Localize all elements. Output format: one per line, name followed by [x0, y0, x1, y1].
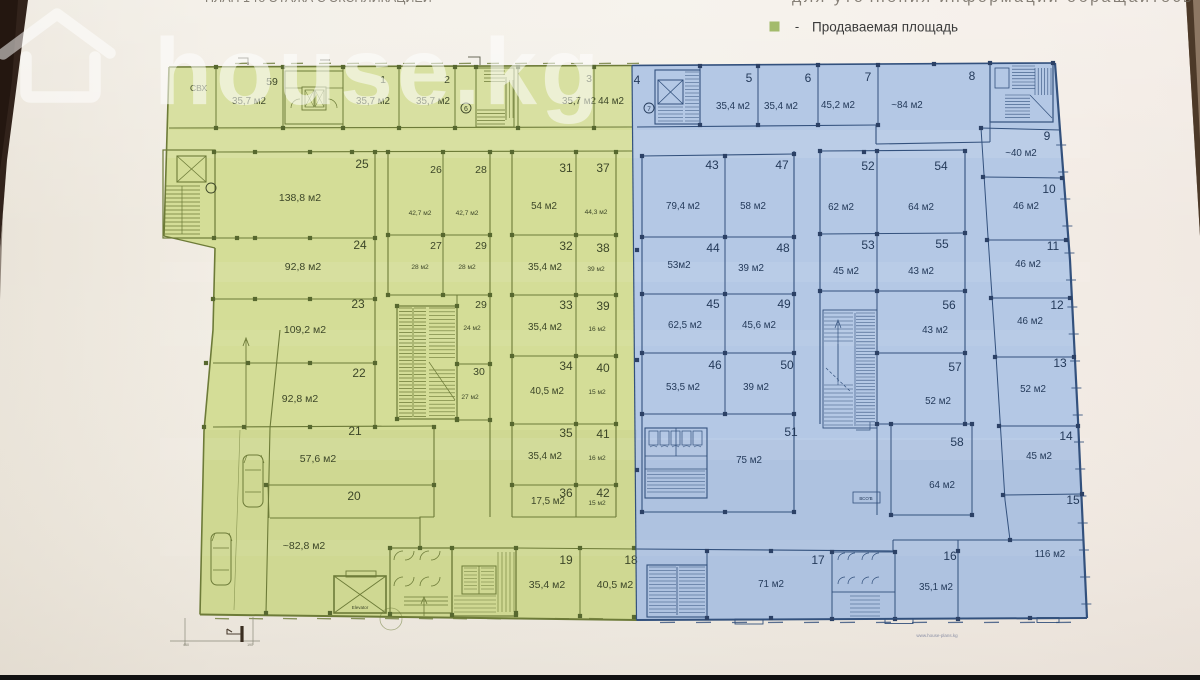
svg-text:92,8 м2: 92,8 м2 — [285, 261, 322, 273]
svg-text:46 м2: 46 м2 — [1015, 259, 1041, 270]
svg-text:4: 4 — [634, 73, 641, 87]
svg-text:20: 20 — [347, 489, 361, 503]
svg-text:28 м2: 28 м2 — [458, 264, 476, 271]
svg-text:27: 27 — [430, 240, 442, 252]
svg-text:138,8 м2: 138,8 м2 — [279, 192, 321, 204]
svg-text:22: 22 — [352, 366, 366, 380]
svg-text:58 м2: 58 м2 — [740, 201, 766, 212]
svg-text:55: 55 — [935, 237, 949, 251]
svg-text:53,5 м2: 53,5 м2 — [666, 382, 700, 393]
svg-text:17: 17 — [811, 553, 825, 567]
svg-text:5: 5 — [746, 71, 753, 85]
svg-text:24 м2: 24 м2 — [463, 325, 481, 332]
svg-text:44: 44 — [706, 241, 720, 255]
svg-text:45 м2: 45 м2 — [1026, 451, 1052, 462]
svg-text:45: 45 — [706, 297, 720, 311]
svg-text:14: 14 — [1059, 429, 1073, 443]
svg-text:52 м2: 52 м2 — [1020, 384, 1046, 395]
svg-text:39 м2: 39 м2 — [743, 382, 769, 393]
svg-text:460: 460 — [183, 643, 189, 647]
svg-text:13: 13 — [1053, 356, 1067, 370]
svg-text:45,6 м2: 45,6 м2 — [742, 320, 776, 331]
svg-text:28 м2: 28 м2 — [411, 264, 429, 271]
svg-text:92,8 м2: 92,8 м2 — [282, 393, 319, 405]
svg-text:24: 24 — [353, 238, 367, 252]
svg-text:28: 28 — [475, 164, 487, 176]
svg-text:71 м2: 71 м2 — [758, 579, 784, 590]
svg-text:26: 26 — [430, 164, 442, 176]
svg-text:62 м2: 62 м2 — [828, 202, 854, 213]
svg-text:54: 54 — [934, 159, 948, 173]
svg-text:25: 25 — [355, 157, 369, 171]
svg-text:47: 47 — [775, 158, 789, 172]
svg-text:house.kg: house.kg — [154, 19, 603, 125]
svg-text:для уточнения информации обращ: для уточнения информации обращайтесь — [792, 0, 1194, 6]
svg-text:35,4 м2: 35,4 м2 — [716, 101, 750, 112]
svg-text:31: 31 — [559, 161, 573, 175]
svg-text:www.house-plans.kg: www.house-plans.kg — [916, 633, 958, 638]
svg-text:38: 38 — [596, 241, 610, 255]
svg-text:43 м2: 43 м2 — [922, 325, 948, 336]
svg-text:35,4 м2: 35,4 м2 — [528, 322, 562, 333]
svg-text:~82,8 м2: ~82,8 м2 — [283, 540, 326, 552]
svg-text:7: 7 — [647, 106, 651, 113]
svg-text:42,7 м2: 42,7 м2 — [409, 210, 432, 217]
svg-text:64 м2: 64 м2 — [908, 202, 934, 213]
svg-text:49: 49 — [777, 297, 791, 311]
svg-text:79,4 м2: 79,4 м2 — [666, 201, 700, 212]
svg-text:109,2 м2: 109,2 м2 — [284, 324, 326, 336]
svg-text:35,4 м2: 35,4 м2 — [764, 101, 798, 112]
svg-text:39 м2: 39 м2 — [738, 263, 764, 274]
svg-text:40,5 м2: 40,5 м2 — [530, 386, 564, 397]
svg-text:33: 33 — [559, 298, 573, 312]
svg-text:62,5 м2: 62,5 м2 — [668, 320, 702, 331]
svg-text:43: 43 — [705, 158, 719, 172]
svg-text:51: 51 — [784, 425, 798, 439]
svg-text:35,4 м2: 35,4 м2 — [528, 262, 562, 273]
svg-text:ПЛАН 1-го ЭТАЖА С ЭКСПЛИКАЦИЕЙ: ПЛАН 1-го ЭТАЖА С ЭКСПЛИКАЦИЕЙ — [205, 0, 432, 5]
svg-text:34: 34 — [559, 359, 573, 373]
svg-text:42: 42 — [596, 486, 610, 500]
svg-text:53м2: 53м2 — [667, 260, 690, 271]
svg-text:29: 29 — [475, 299, 487, 311]
svg-text:190: 190 — [247, 643, 253, 647]
svg-text:8: 8 — [969, 69, 976, 83]
svg-text:30: 30 — [473, 366, 485, 378]
svg-text:9: 9 — [1044, 129, 1051, 143]
svg-text:42,7 м2: 42,7 м2 — [456, 210, 479, 217]
svg-text:23: 23 — [351, 297, 365, 311]
svg-text:17,5 м2: 17,5 м2 — [531, 496, 565, 507]
svg-text:-: - — [795, 19, 799, 34]
svg-text:116 м2: 116 м2 — [1035, 549, 1066, 560]
svg-text:35,4 м2: 35,4 м2 — [529, 579, 566, 591]
svg-text:12: 12 — [1050, 298, 1064, 312]
svg-text:~40 м2: ~40 м2 — [1005, 148, 1037, 159]
svg-text:6: 6 — [805, 71, 812, 85]
svg-text:40,5 м2: 40,5 м2 — [597, 579, 634, 591]
svg-text:27 м2: 27 м2 — [461, 394, 479, 401]
svg-text:43 м2: 43 м2 — [908, 266, 934, 277]
svg-text:46 м2: 46 м2 — [1017, 316, 1043, 327]
svg-text:58: 58 — [950, 435, 964, 449]
svg-text:50: 50 — [780, 358, 794, 372]
svg-text:75 м2: 75 м2 — [736, 455, 762, 466]
svg-text:10: 10 — [1042, 182, 1056, 196]
svg-text:29: 29 — [475, 240, 487, 252]
svg-text:15: 15 — [1066, 493, 1080, 507]
svg-text:48: 48 — [776, 241, 790, 255]
svg-text:~84 м2: ~84 м2 — [891, 100, 923, 111]
svg-text:54 м2: 54 м2 — [531, 201, 557, 212]
svg-text:37: 37 — [596, 161, 610, 175]
svg-text:52 м2: 52 м2 — [925, 396, 951, 407]
svg-text:15 м2: 15 м2 — [588, 389, 606, 396]
svg-text:46 м2: 46 м2 — [1013, 201, 1039, 212]
svg-text:16 м2: 16 м2 — [588, 326, 606, 333]
svg-text:64 м2: 64 м2 — [929, 480, 955, 491]
svg-text:57: 57 — [948, 360, 962, 374]
svg-text:40: 40 — [596, 361, 610, 375]
svg-text:16: 16 — [943, 549, 957, 563]
svg-text:32: 32 — [559, 239, 573, 253]
svg-text:Elevator: Elevator — [352, 605, 369, 610]
svg-text:52: 52 — [861, 159, 875, 173]
svg-text:57,6 м2: 57,6 м2 — [300, 453, 337, 465]
svg-text:39 м2: 39 м2 — [587, 266, 605, 273]
svg-text:45 м2: 45 м2 — [833, 266, 859, 277]
svg-text:53: 53 — [861, 238, 875, 252]
svg-text:35,4 м2: 35,4 м2 — [528, 451, 562, 462]
svg-text:46: 46 — [708, 358, 722, 372]
svg-text:35: 35 — [559, 426, 573, 440]
svg-text:11: 11 — [1047, 239, 1060, 253]
svg-text:21: 21 — [348, 424, 362, 438]
svg-text:16 м2: 16 м2 — [588, 455, 606, 462]
svg-text:7: 7 — [865, 70, 872, 84]
svg-text:45,2 м2: 45,2 м2 — [821, 100, 855, 111]
svg-text:ВСО'В: ВСО'В — [859, 496, 872, 501]
svg-text:44,3 м2: 44,3 м2 — [585, 209, 608, 216]
svg-text:56: 56 — [942, 298, 956, 312]
svg-text:15 м2: 15 м2 — [588, 500, 606, 507]
svg-text:39: 39 — [596, 299, 610, 313]
svg-text:Продаваемая площадь: Продаваемая площадь — [812, 20, 958, 35]
svg-text:35,1 м2: 35,1 м2 — [919, 582, 953, 593]
svg-text:41: 41 — [596, 427, 610, 441]
svg-text:19: 19 — [559, 553, 573, 567]
